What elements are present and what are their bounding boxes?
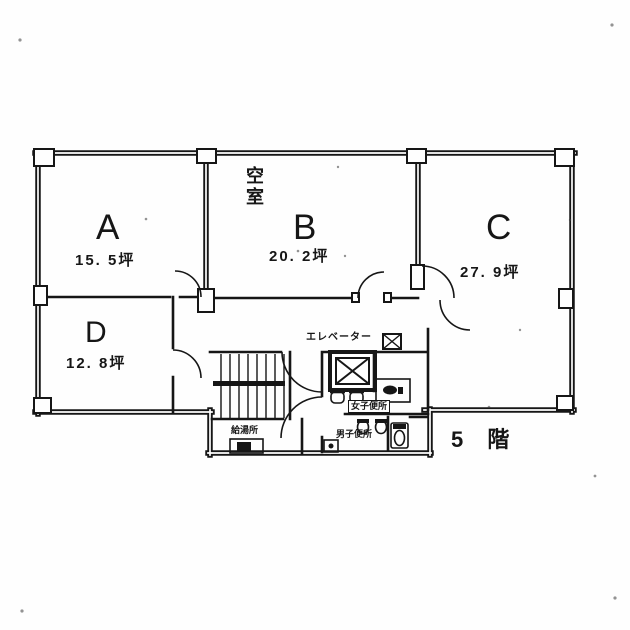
room-d-letter: D [85, 318, 108, 348]
mens-toilet-label: 男子便所 [336, 430, 372, 439]
room-a-area: 15. 5坪 [75, 253, 135, 268]
floor-number-label: 5 階 [451, 429, 511, 451]
room-c-letter: C [486, 210, 512, 245]
pillars-group [34, 149, 574, 413]
shaft-x-icon [383, 334, 401, 349]
room-b-area: 20. 2坪 [269, 249, 329, 264]
walls-outer-group [35, 151, 575, 455]
elevator-x-icon [336, 358, 369, 384]
floorplan-drawing [0, 0, 630, 630]
elevator-label: エレベーター [306, 333, 372, 343]
kitchenette-label: 給湯所 [231, 426, 258, 435]
floorplan-page: A 15. 5坪 B 20. 2坪 C 27. 9坪 D 12. 8坪 空室 エ… [0, 0, 630, 630]
room-b-letter: B [293, 210, 317, 245]
vacancy-label: 空室 [245, 166, 263, 208]
room-c-area: 27. 9坪 [460, 265, 520, 280]
toilet-icon [391, 423, 408, 448]
cleaning-sink-icon [324, 440, 338, 452]
scan-noise-specks [18, 23, 616, 612]
room-d-area: 12. 8坪 [66, 356, 126, 371]
elevator-icon [330, 352, 375, 390]
vanity-counter-icon [376, 379, 410, 402]
stairs-icon [213, 354, 285, 418]
womens-toilet-label: 女子便所 [348, 400, 390, 413]
room-a-letter: A [96, 210, 120, 245]
